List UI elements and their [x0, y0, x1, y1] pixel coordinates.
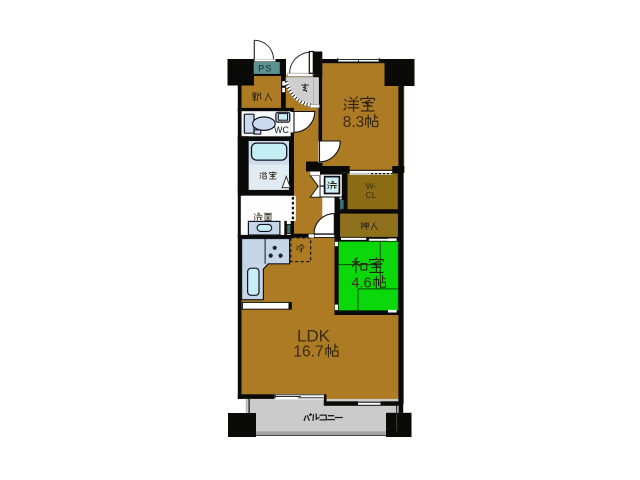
svg-text:16.7: 16.7: [293, 344, 323, 361]
svg-text:WC: WC: [274, 125, 289, 135]
svg-text:8.3: 8.3: [343, 114, 365, 131]
svg-text:CL: CL: [366, 190, 377, 200]
svg-text:4.6: 4.6: [351, 276, 371, 292]
svg-text:PS: PS: [258, 64, 272, 74]
